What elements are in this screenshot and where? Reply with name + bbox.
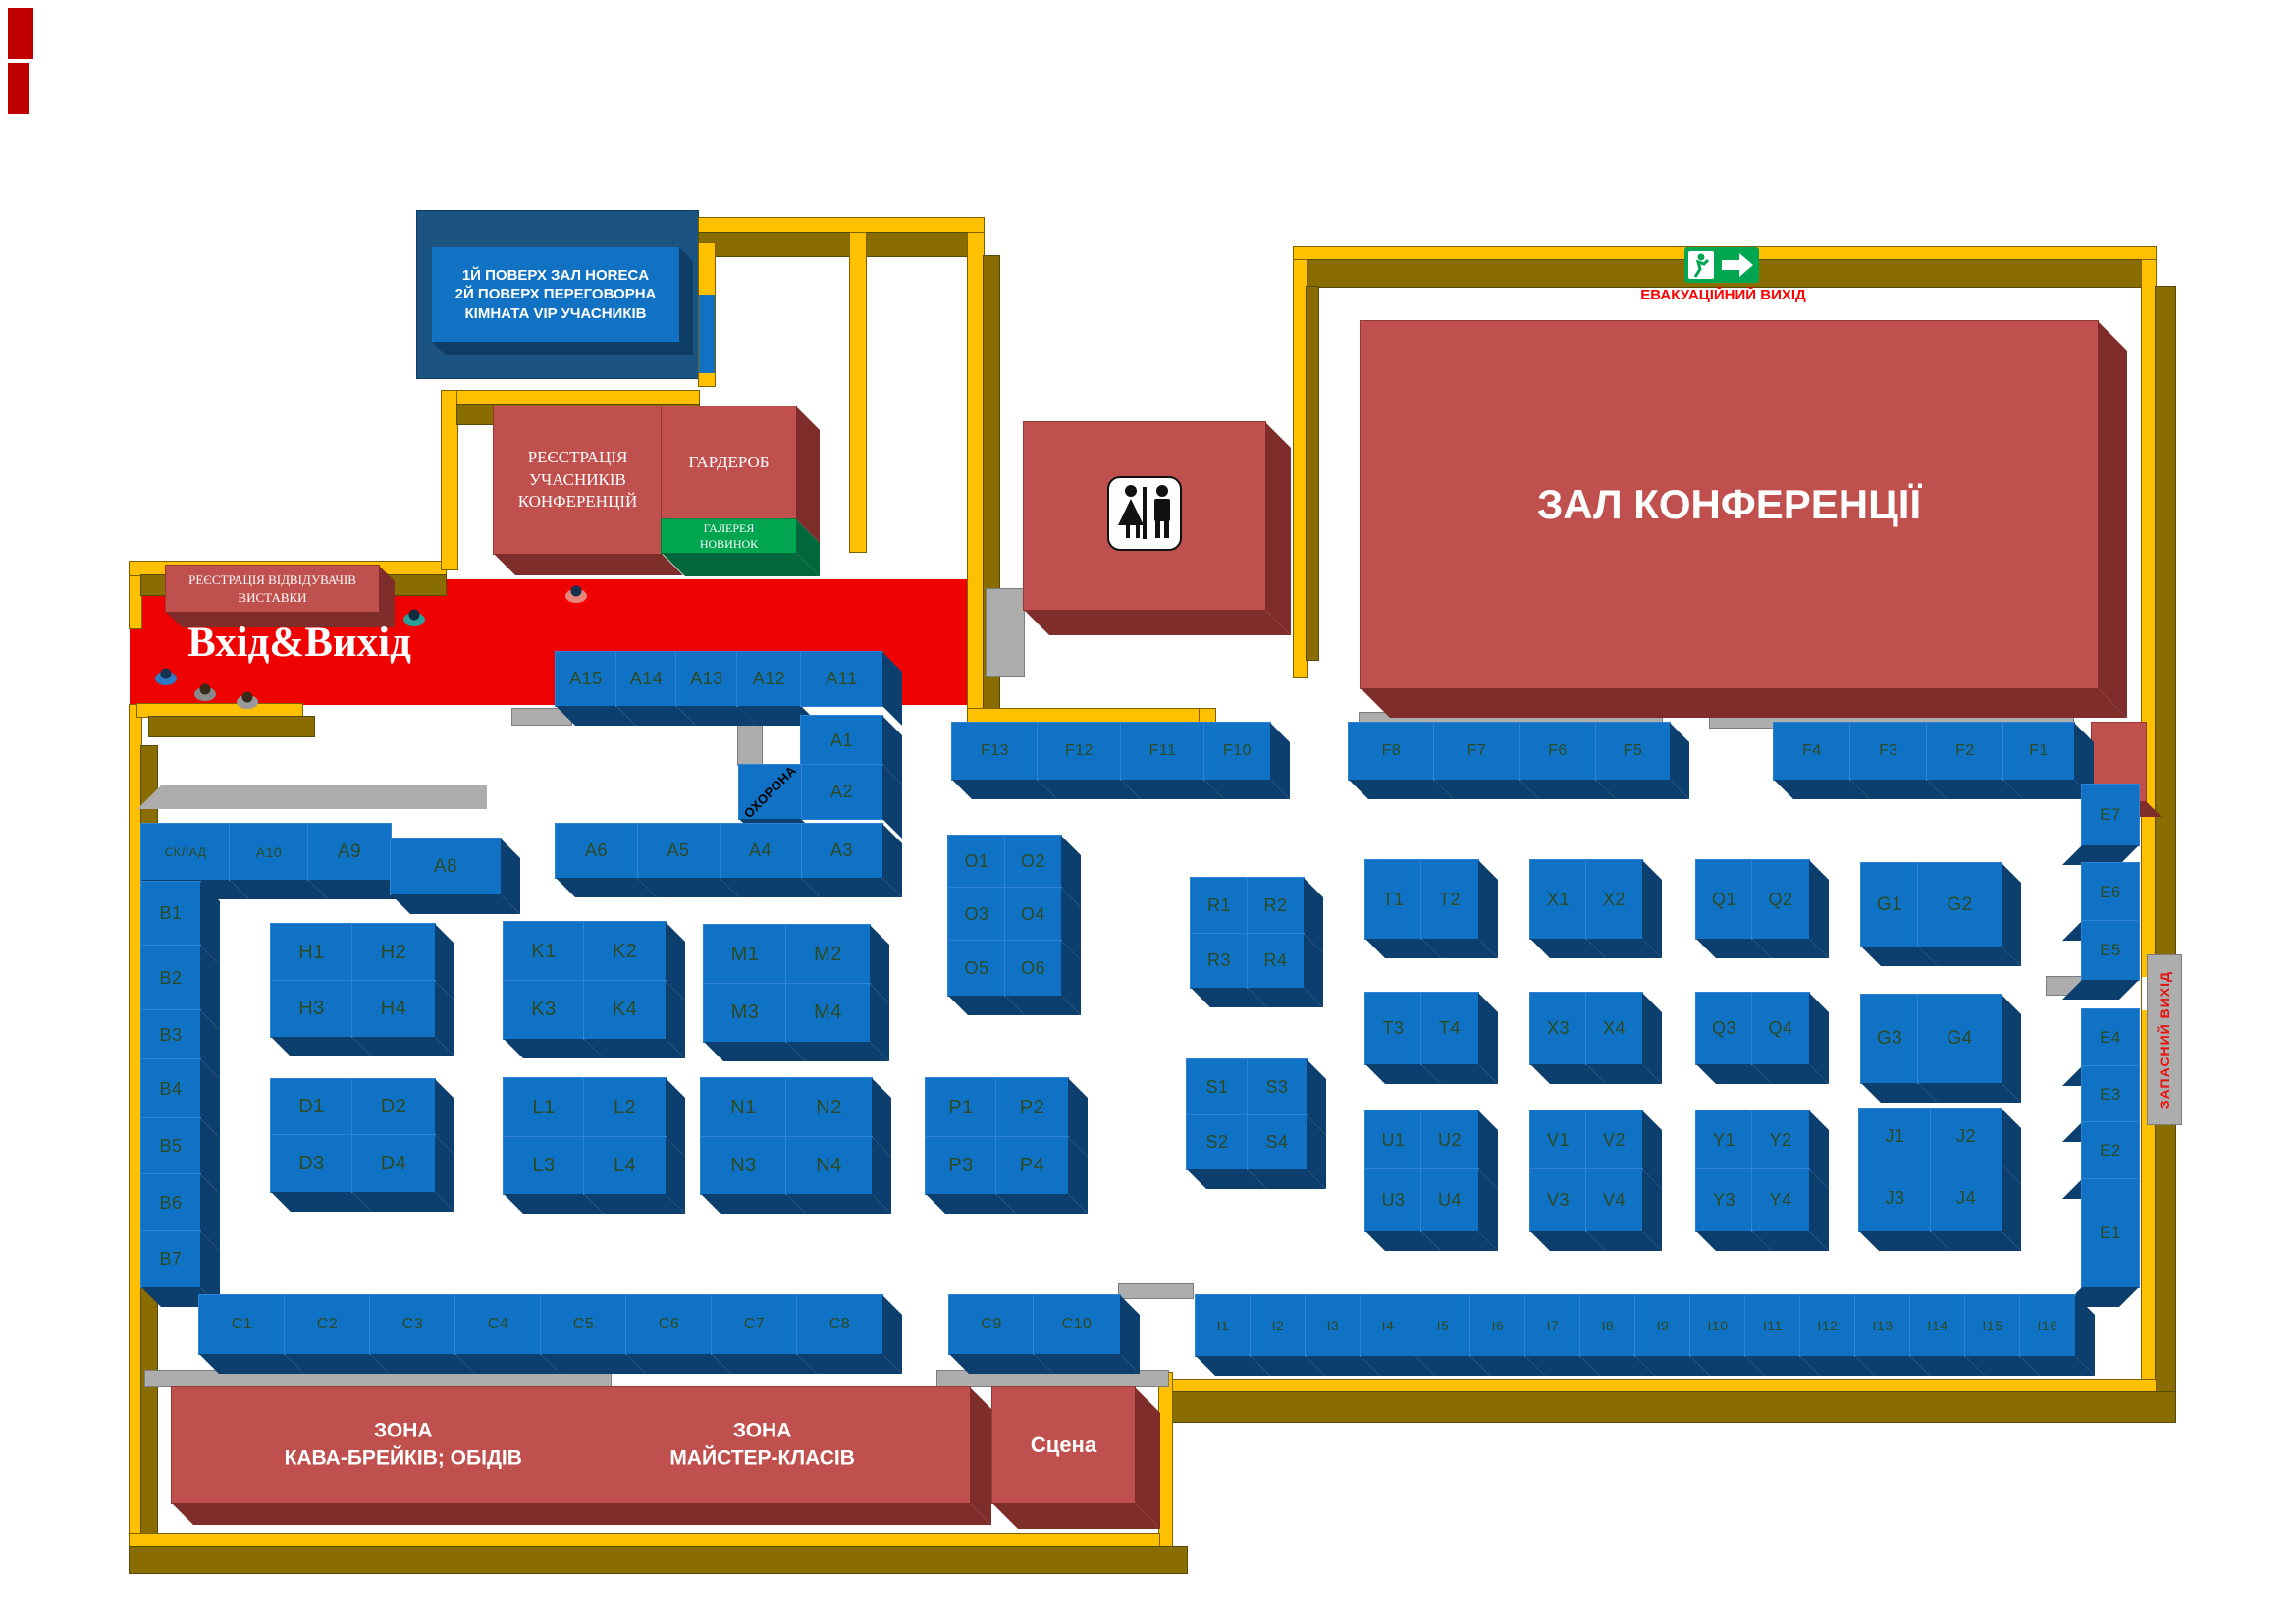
wall	[1159, 1373, 1172, 1547]
booth-F6[interactable]: F6	[1519, 722, 1597, 781]
booth-label: T4	[1439, 1018, 1461, 1039]
booth-A12[interactable]: A12	[736, 651, 802, 707]
partition	[1119, 1284, 1193, 1298]
booth-label: R2	[1263, 895, 1287, 916]
booth-label: M2	[814, 944, 842, 966]
booth-label: A11	[826, 669, 857, 689]
booth-3d-side	[494, 554, 683, 575]
booth-C8[interactable]: C8	[796, 1294, 883, 1355]
booth-I1[interactable]: I1	[1195, 1294, 1252, 1357]
booth-label: S1	[1205, 1077, 1228, 1098]
booth-E1[interactable]: E1	[2081, 1178, 2140, 1288]
booth-S2[interactable]: S2	[1186, 1114, 1249, 1170]
booth-label: L1	[532, 1097, 555, 1119]
booth-Y3[interactable]: Y3	[1695, 1168, 1753, 1232]
booth-label: I6	[1492, 1318, 1505, 1333]
booth-3d-side	[970, 1387, 991, 1525]
booth-B3[interactable]: B3	[140, 1009, 201, 1060]
booth-O4[interactable]: O4	[1004, 887, 1062, 942]
booth-L1[interactable]: L1	[503, 1077, 585, 1138]
booth-3d-side	[432, 342, 693, 355]
booth-V1[interactable]: V1	[1529, 1110, 1587, 1170]
booth-Y4[interactable]: Y4	[1751, 1168, 1810, 1232]
booth-B6[interactable]: B6	[140, 1173, 201, 1232]
booth-D4[interactable]: D4	[351, 1134, 436, 1193]
booth-label: Y1	[1713, 1130, 1735, 1151]
booth-C10[interactable]: C10	[1033, 1294, 1121, 1355]
booth-label: A12	[753, 669, 786, 689]
booth-label: Q1	[1712, 890, 1736, 910]
booth-A15[interactable]: A15	[555, 651, 617, 707]
room-label: ЗАЛ КОНФЕРЕНЦІЇ	[1537, 478, 1921, 532]
booth-label: G1	[1877, 894, 1902, 916]
wall	[699, 295, 715, 373]
booth-C5[interactable]: C5	[540, 1294, 627, 1355]
booth-label: I14	[1928, 1318, 1949, 1333]
booth-O3[interactable]: O3	[947, 887, 1006, 942]
booth-A10[interactable]: A10	[229, 823, 309, 881]
booth-I11[interactable]: I11	[1744, 1294, 1801, 1357]
booth-label: M1	[731, 944, 760, 966]
room-label: КІМНАТА VIP УЧАСНИКІВ	[465, 304, 647, 324]
booth-S1[interactable]: S1	[1186, 1058, 1249, 1116]
booth-N4[interactable]: N4	[785, 1136, 873, 1195]
booth-X1[interactable]: X1	[1529, 859, 1587, 940]
booth-N1[interactable]: N1	[700, 1077, 787, 1138]
booth-label: K2	[613, 941, 637, 963]
booth-X2[interactable]: X2	[1585, 859, 1643, 940]
booth-label: C3	[402, 1316, 423, 1333]
booth-F4[interactable]: F4	[1773, 722, 1851, 781]
booth-3d-side	[662, 553, 820, 576]
booth-label: L3	[532, 1155, 555, 1177]
booth-label: F4	[1802, 742, 1822, 760]
booth-F11[interactable]: F11	[1120, 722, 1205, 781]
wall	[130, 1534, 1159, 1547]
booth-label: E6	[2100, 883, 2121, 902]
booth-A14[interactable]: A14	[615, 651, 677, 707]
booth-label: R4	[1263, 950, 1287, 971]
booth-label: P2	[1020, 1097, 1044, 1119]
booth-label: O6	[1021, 958, 1045, 979]
booth-label: C1	[232, 1316, 252, 1333]
booth-ОХОРОНА[interactable]: ОХОРОНА	[738, 764, 802, 820]
booth-A11[interactable]: A11	[800, 651, 883, 707]
booth-H3[interactable]: H3	[270, 980, 353, 1038]
booth-3d-side	[992, 1503, 1160, 1529]
booth-H4[interactable]: H4	[351, 980, 436, 1038]
booth-label: C2	[317, 1316, 338, 1333]
booth-F13[interactable]: F13	[951, 722, 1039, 781]
red-marker	[8, 63, 29, 114]
booth-label: ОХОРОНА	[741, 763, 799, 821]
booth-I15[interactable]: I15	[1964, 1294, 2021, 1357]
booth-Q4[interactable]: Q4	[1751, 992, 1810, 1065]
person-icon	[149, 660, 183, 693]
booth-label: G3	[1877, 1028, 1902, 1050]
booth-3d-side	[391, 894, 520, 914]
booth-B1[interactable]: B1	[140, 881, 201, 947]
booth-label: D1	[298, 1096, 325, 1118]
booth-C6[interactable]: C6	[625, 1294, 713, 1355]
person-icon	[560, 577, 593, 611]
booth-J3[interactable]: J3	[1858, 1164, 1932, 1232]
booth-E6[interactable]: E6	[2081, 862, 2140, 922]
booth-T3[interactable]: T3	[1364, 992, 1422, 1065]
booth-label: K1	[531, 941, 556, 963]
booth-F2[interactable]: F2	[1926, 722, 2004, 781]
booth-I5[interactable]: I5	[1415, 1294, 1471, 1357]
wall	[968, 233, 984, 709]
booth-T2[interactable]: T2	[1420, 859, 1479, 940]
wall	[1172, 1380, 2156, 1392]
booth-label: Q3	[1712, 1018, 1736, 1039]
booth-I3[interactable]: I3	[1305, 1294, 1362, 1357]
booth-3d-side	[172, 1503, 991, 1525]
booth-label: Q2	[1768, 890, 1792, 910]
booth-label: X2	[1603, 890, 1626, 910]
booth-X4[interactable]: X4	[1585, 992, 1643, 1065]
booth-F8[interactable]: F8	[1348, 722, 1435, 781]
booth-Q1[interactable]: Q1	[1695, 859, 1753, 940]
booth-J4[interactable]: J4	[1930, 1164, 2002, 1232]
booth-label: A1	[830, 731, 853, 751]
booth-E2[interactable]: E2	[2081, 1121, 2140, 1180]
booth-C4[interactable]: C4	[454, 1294, 542, 1355]
wall	[699, 233, 970, 256]
booth-label: Y2	[1769, 1130, 1791, 1151]
booth-label: T1	[1382, 890, 1404, 910]
booth-C9[interactable]: C9	[948, 1294, 1035, 1355]
booth-label: O3	[964, 904, 988, 925]
booth-S3[interactable]: S3	[1247, 1058, 1308, 1116]
booth-U2[interactable]: U2	[1420, 1110, 1479, 1170]
booth-label: S2	[1205, 1132, 1228, 1153]
booth-B2[interactable]: B2	[140, 945, 201, 1011]
booth-I4[interactable]: I4	[1360, 1294, 1416, 1357]
booth-label: A9	[338, 841, 361, 863]
booth-C2[interactable]: C2	[284, 1294, 371, 1355]
booth-K3[interactable]: K3	[503, 980, 585, 1040]
booth-label: C7	[744, 1316, 765, 1333]
booth-label: L2	[614, 1097, 636, 1119]
room-conference-hall[interactable]: ЗАЛ КОНФЕРЕНЦІЇ	[1360, 320, 2099, 689]
booth-A5[interactable]: A5	[636, 823, 721, 879]
booth-R1[interactable]: R1	[1190, 877, 1249, 935]
booth-I12[interactable]: I12	[1799, 1294, 1856, 1357]
room-label: 1Й ПОВЕРХ ЗАЛ HORECA	[462, 266, 649, 286]
room-label: ГАЛЕРЕЯ	[704, 520, 755, 536]
booth-label: B5	[159, 1136, 182, 1157]
booth-X3[interactable]: X3	[1529, 992, 1587, 1065]
booth-label: V4	[1603, 1190, 1626, 1211]
booth-label: C8	[829, 1316, 850, 1333]
booth-label: X1	[1547, 890, 1570, 910]
booth-K1[interactable]: K1	[503, 921, 585, 982]
booth-F12[interactable]: F12	[1037, 722, 1122, 781]
booth-label: C5	[573, 1316, 594, 1333]
booth-label: H3	[298, 998, 325, 1020]
booth-label: E2	[2100, 1141, 2121, 1161]
booth-label: V3	[1547, 1190, 1570, 1211]
booth-M1[interactable]: M1	[703, 924, 787, 985]
booth-I16[interactable]: I16	[2019, 1294, 2076, 1357]
booth-A2[interactable]: A2	[800, 764, 883, 820]
booth-I8[interactable]: I8	[1579, 1294, 1636, 1357]
booth-label: G2	[1947, 894, 1972, 916]
booth-B4[interactable]: B4	[140, 1058, 201, 1119]
booth-O2[interactable]: O2	[1004, 835, 1062, 889]
booth-P2[interactable]: P2	[995, 1077, 1069, 1138]
booth-label: O1	[964, 851, 988, 872]
booth-label: B6	[159, 1193, 182, 1214]
booth-L2[interactable]: L2	[583, 1077, 667, 1138]
booth-label: O2	[1021, 851, 1045, 872]
booth-label: F8	[1382, 742, 1402, 760]
booth-A1[interactable]: A1	[800, 715, 883, 766]
booth-R4[interactable]: R4	[1247, 933, 1305, 989]
booth-C3[interactable]: C3	[369, 1294, 456, 1355]
booth-label: A5	[667, 840, 689, 861]
booth-label: F5	[1624, 742, 1643, 760]
booth-label: U3	[1381, 1190, 1405, 1211]
booth-A8[interactable]: A8	[390, 838, 502, 895]
booth-label: L4	[614, 1155, 636, 1177]
booth-label: E4	[2100, 1028, 2121, 1048]
booth-СКЛАД[interactable]: СКЛАД	[140, 823, 231, 881]
booth-label: I10	[1708, 1318, 1729, 1333]
booth-B5[interactable]: B5	[140, 1117, 201, 1175]
booth-label: C10	[1062, 1316, 1093, 1333]
expo-floor-plan: Вхід&Вихід ЕВАКУАЦІЙНИЙ ВИХІД ЗАПАСНИЙ В…	[0, 0, 2296, 1624]
booth-I7[interactable]: I7	[1524, 1294, 1581, 1357]
booth-P1[interactable]: P1	[925, 1077, 997, 1138]
booth-R3[interactable]: R3	[1190, 933, 1249, 989]
booth-M4[interactable]: M4	[785, 983, 871, 1043]
booth-label: U1	[1381, 1130, 1405, 1151]
room-reg-conference[interactable]: РЕЄСТРАЦІЯУЧАСНИКІВКОНФЕРЕНЦІЙ	[493, 406, 663, 555]
booth-label: E7	[2100, 805, 2121, 825]
booth-3d-side	[1361, 688, 2127, 718]
booth-Q3[interactable]: Q3	[1695, 992, 1753, 1065]
wall	[699, 218, 984, 233]
booth-label: I5	[1437, 1318, 1450, 1333]
booth-label: I9	[1657, 1318, 1670, 1333]
booth-label: N1	[730, 1097, 757, 1119]
booth-G2[interactable]: G2	[1917, 862, 2002, 947]
booth-Y2[interactable]: Y2	[1751, 1110, 1810, 1170]
booth-K4[interactable]: K4	[583, 980, 667, 1040]
booth-label: X3	[1547, 1018, 1570, 1039]
booth-D2[interactable]: D2	[351, 1078, 436, 1136]
booth-Q2[interactable]: Q2	[1751, 859, 1810, 940]
booth-label: C9	[981, 1316, 1001, 1333]
room-zone[interactable]: ЗОНАКАВА-БРЕЙКІВ; ОБІДІВЗОНАМАЙСТЕР-КЛАС…	[171, 1386, 971, 1504]
booth-V2[interactable]: V2	[1585, 1110, 1643, 1170]
person-icon	[398, 601, 431, 634]
booth-3d-side	[2098, 321, 2127, 718]
room-label: НОВИНОК	[700, 536, 758, 552]
booth-O6[interactable]: O6	[1004, 940, 1062, 997]
booth-label: F3	[1879, 742, 1898, 760]
booth-U4[interactable]: U4	[1420, 1168, 1479, 1232]
booth-O5[interactable]: O5	[947, 940, 1006, 997]
booth-label: I4	[1382, 1318, 1395, 1333]
room-label: ВИСТАВКИ	[238, 589, 306, 607]
reserve-exit-door: ЗАПАСНИЙ ВИХІД	[2148, 955, 2181, 1124]
booth-label: B1	[159, 903, 182, 924]
booth-C7[interactable]: C7	[711, 1294, 798, 1355]
wall	[968, 709, 1215, 723]
wall	[149, 717, 314, 736]
booth-M3[interactable]: M3	[703, 983, 787, 1043]
booth-Y1[interactable]: Y1	[1695, 1110, 1753, 1170]
booth-label: I3	[1327, 1318, 1340, 1333]
booth-label: K3	[531, 999, 556, 1021]
booth-P3[interactable]: P3	[925, 1136, 997, 1195]
booth-label: V2	[1603, 1130, 1626, 1151]
booth-I13[interactable]: I13	[1854, 1294, 1911, 1357]
room-horeca-sign[interactable]: 1Й ПОВЕРХ ЗАЛ HORECA2Й ПОВЕРХ ПЕРЕГОВОРН…	[432, 247, 679, 342]
booth-label: P4	[1020, 1155, 1044, 1177]
booth-label: F7	[1468, 742, 1487, 760]
booth-H2[interactable]: H2	[351, 923, 436, 982]
booth-label: E5	[2100, 941, 2121, 960]
person-icon	[231, 683, 264, 717]
booth-A4[interactable]: A4	[719, 823, 802, 879]
room-label: РЕЄСТРАЦІЯ	[528, 447, 628, 469]
room-label: УЧАСНИКІВ	[529, 469, 626, 492]
wc-icon	[1107, 476, 1182, 556]
booth-label: N3	[730, 1155, 757, 1177]
booth-K2[interactable]: K2	[583, 921, 667, 982]
booth-I14[interactable]: I14	[1909, 1294, 1966, 1357]
booth-label: D2	[381, 1096, 407, 1118]
booth-label: R1	[1207, 895, 1231, 916]
booth-G1[interactable]: G1	[1860, 862, 1919, 947]
booth-R2[interactable]: R2	[1247, 877, 1305, 935]
booth-J1[interactable]: J1	[1858, 1108, 1932, 1165]
booth-label: F1	[2029, 742, 2049, 760]
booth-label: F2	[1955, 742, 1975, 760]
booth-T1[interactable]: T1	[1364, 859, 1422, 940]
booth-I9[interactable]: I9	[1634, 1294, 1691, 1357]
booth-F1[interactable]: F1	[2002, 722, 2075, 781]
booth-label: I13	[1873, 1318, 1894, 1333]
room-cloakroom[interactable]: ГАРДЕРОБ	[661, 406, 797, 520]
booth-I10[interactable]: I10	[1689, 1294, 1746, 1357]
booth-L3[interactable]: L3	[503, 1136, 585, 1195]
room-reg-visitors[interactable]: РЕЄСТРАЦІЯ ВІДВІДУВАЧІВВИСТАВКИ	[165, 565, 380, 613]
booth-label: K4	[613, 999, 637, 1021]
room-wc[interactable]	[1023, 421, 1266, 611]
booth-I2[interactable]: I2	[1250, 1294, 1307, 1357]
booth-label: I2	[1272, 1318, 1285, 1333]
red-marker	[8, 8, 33, 59]
booth-L4[interactable]: L4	[583, 1136, 667, 1195]
booth-label: B7	[159, 1249, 182, 1270]
booth-D1[interactable]: D1	[270, 1078, 353, 1136]
booth-H1[interactable]: H1	[270, 923, 353, 982]
room-stage[interactable]: Сцена	[991, 1386, 1136, 1504]
booth-label: B4	[159, 1079, 182, 1100]
booth-O1[interactable]: O1	[947, 835, 1006, 889]
booth-label: E3	[2100, 1085, 2121, 1105]
booth-D3[interactable]: D3	[270, 1134, 353, 1193]
booth-label: M4	[814, 1001, 842, 1024]
booth-E3[interactable]: E3	[2081, 1065, 2140, 1123]
booth-label: СКЛАД	[165, 845, 207, 859]
booth-J2[interactable]: J2	[1930, 1108, 2002, 1165]
booth-label: I16	[2038, 1318, 2058, 1333]
booth-N2[interactable]: N2	[785, 1077, 873, 1138]
booth-U3[interactable]: U3	[1364, 1168, 1422, 1232]
booth-F7[interactable]: F7	[1433, 722, 1521, 781]
booth-A6[interactable]: A6	[555, 823, 638, 879]
booth-label: I1	[1217, 1318, 1230, 1333]
zone-masterclass-label: ЗОНАМАЙСТЕР-КЛАСІВ	[603, 1418, 922, 1474]
booth-label: A2	[830, 782, 853, 802]
evacuation-exit-label: ЕВАКУАЦІЙНИЙ ВИХІД	[1598, 287, 1848, 303]
booth-label: F11	[1149, 742, 1177, 760]
booth-S4[interactable]: S4	[1247, 1114, 1308, 1170]
room-label: КОНФЕРЕНЦІЙ	[518, 491, 638, 514]
wall	[2156, 287, 2175, 1422]
booth-label: F10	[1223, 742, 1252, 760]
booth-label: U2	[1438, 1130, 1462, 1151]
booth-label: J3	[1885, 1188, 1904, 1209]
booth-U1[interactable]: U1	[1364, 1110, 1422, 1170]
booth-B7[interactable]: B7	[140, 1230, 201, 1288]
booth-V3[interactable]: V3	[1529, 1168, 1587, 1232]
booth-G3[interactable]: G3	[1860, 994, 1919, 1084]
person-icon	[188, 676, 222, 709]
partition	[987, 589, 1024, 676]
wall	[130, 1547, 1187, 1573]
wall	[442, 391, 457, 569]
booth-V4[interactable]: V4	[1585, 1168, 1643, 1232]
booth-label: N4	[816, 1155, 842, 1177]
booth-label: A8	[434, 856, 457, 878]
booth-C1[interactable]: C1	[198, 1294, 286, 1355]
booth-M2[interactable]: M2	[785, 924, 871, 985]
booth-F10[interactable]: F10	[1203, 722, 1271, 781]
booth-label: C6	[659, 1316, 679, 1333]
booth-A9[interactable]: A9	[307, 823, 392, 881]
booth-A13[interactable]: A13	[675, 651, 738, 707]
booth-G4[interactable]: G4	[1917, 994, 2002, 1084]
reserve-exit-label: ЗАПАСНИЙ ВИХІД	[2157, 971, 2172, 1109]
booth-P4[interactable]: P4	[995, 1136, 1069, 1195]
booth-label: V1	[1547, 1130, 1570, 1151]
booth-F5[interactable]: F5	[1595, 722, 1671, 781]
room-label: РЕЄСТРАЦІЯ ВІДВІДУВАЧІВ	[188, 571, 356, 589]
booth-3d-side	[1265, 422, 1291, 635]
booth-N3[interactable]: N3	[700, 1136, 787, 1195]
booth-E5[interactable]: E5	[2081, 920, 2140, 981]
booth-label: A15	[569, 669, 603, 689]
booth-F3[interactable]: F3	[1849, 722, 1928, 781]
booth-E7[interactable]: E7	[2081, 784, 2140, 846]
booth-I6[interactable]: I6	[1469, 1294, 1526, 1357]
room-novelty-gallery[interactable]: ГАЛЕРЕЯНОВИНОК	[661, 518, 797, 554]
booth-T4[interactable]: T4	[1420, 992, 1479, 1065]
booth-A3[interactable]: A3	[800, 823, 883, 879]
wall	[1172, 1392, 2175, 1422]
booth-label: Y3	[1713, 1190, 1735, 1211]
booth-label: I7	[1547, 1318, 1560, 1333]
booth-E4[interactable]: E4	[2081, 1008, 2140, 1067]
